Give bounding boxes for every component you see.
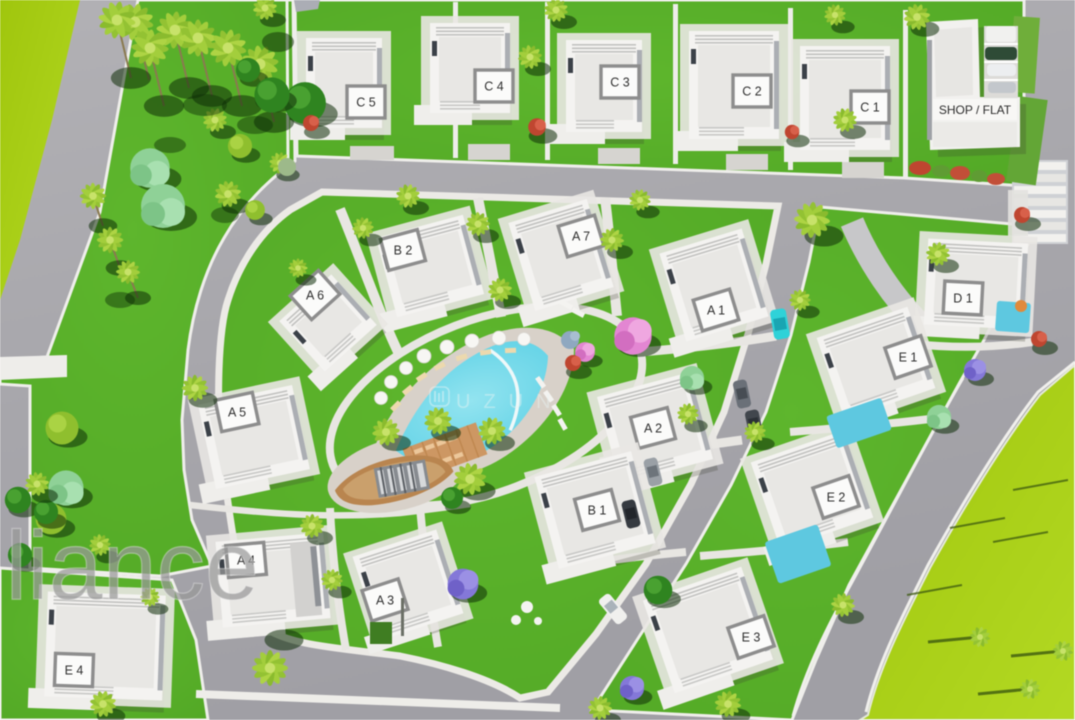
svg-text:A 6: A 6 bbox=[306, 289, 324, 303]
svg-text:A 1: A 1 bbox=[707, 304, 725, 318]
svg-text:B 1: B 1 bbox=[588, 504, 607, 518]
svg-text:UZUN: UZUN bbox=[456, 391, 564, 413]
svg-text:B 2: B 2 bbox=[394, 244, 413, 258]
svg-text:SHOP / FLAT: SHOP / FLAT bbox=[939, 103, 1012, 117]
svg-text:C 3: C 3 bbox=[610, 76, 630, 90]
svg-text:A 5: A 5 bbox=[228, 406, 246, 420]
svg-text:E 2: E 2 bbox=[827, 491, 846, 505]
svg-text:C 2: C 2 bbox=[742, 85, 762, 99]
svg-text:A 7: A 7 bbox=[572, 230, 590, 244]
svg-text:E 4: E 4 bbox=[65, 664, 84, 678]
svg-text:E 1: E 1 bbox=[899, 351, 918, 365]
svg-text:D 1: D 1 bbox=[953, 292, 973, 306]
svg-text:A 3: A 3 bbox=[376, 594, 394, 608]
svg-text:C 5: C 5 bbox=[356, 96, 376, 110]
svg-text:E 3: E 3 bbox=[742, 631, 761, 645]
svg-text:C 1: C 1 bbox=[860, 101, 880, 115]
svg-text:C 4: C 4 bbox=[484, 80, 504, 94]
svg-text:A 2: A 2 bbox=[644, 422, 662, 436]
svg-text:lliance: lliance bbox=[0, 511, 259, 620]
